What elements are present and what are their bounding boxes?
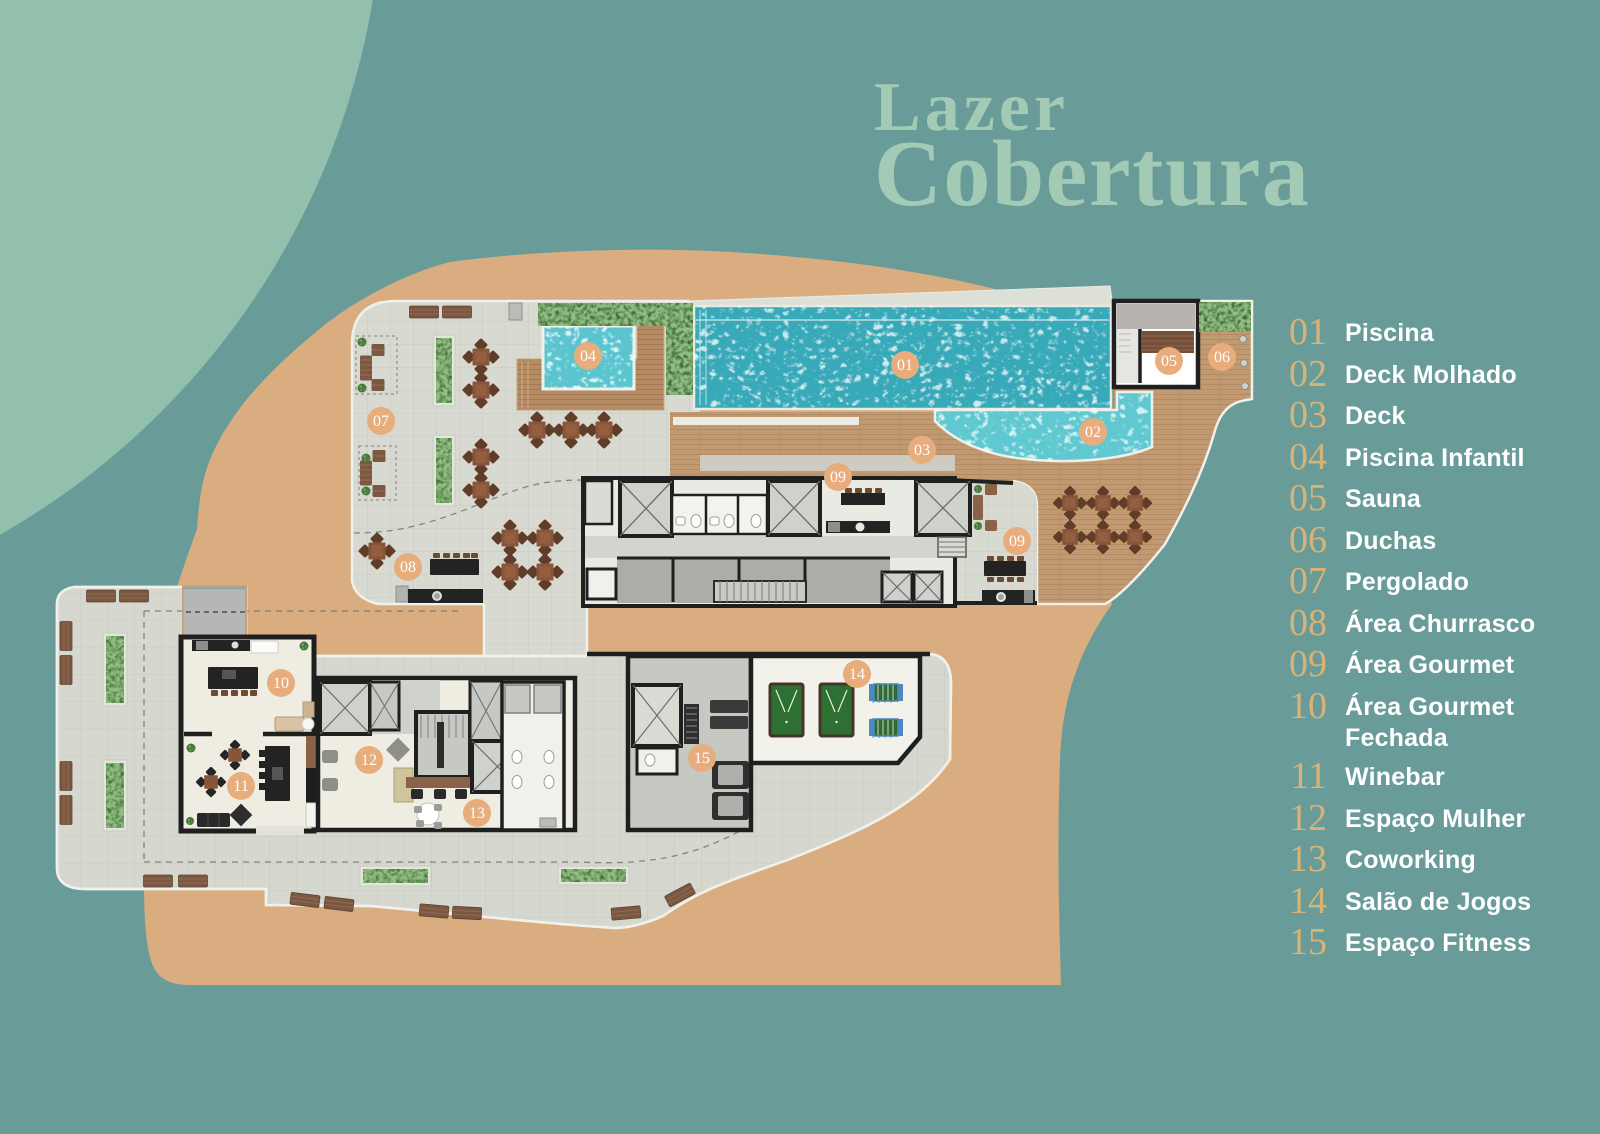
svg-text:14: 14 xyxy=(1289,880,1327,922)
svg-text:15: 15 xyxy=(1289,921,1327,963)
svg-text:Área Churrasco: Área Churrasco xyxy=(1345,609,1535,638)
svg-text:02: 02 xyxy=(1289,353,1327,395)
svg-text:01: 01 xyxy=(897,357,913,374)
svg-text:12: 12 xyxy=(1289,797,1327,839)
svg-text:15: 15 xyxy=(694,750,710,767)
svg-text:Fechada: Fechada xyxy=(1345,724,1449,752)
svg-text:11: 11 xyxy=(1290,755,1327,797)
svg-text:11: 11 xyxy=(233,778,248,795)
svg-text:14: 14 xyxy=(849,666,865,683)
svg-text:10: 10 xyxy=(273,675,289,692)
svg-text:Cobertura: Cobertura xyxy=(874,122,1310,226)
svg-text:10: 10 xyxy=(1289,685,1327,727)
svg-text:13: 13 xyxy=(469,805,485,822)
svg-text:Espaço Mulher: Espaço Mulher xyxy=(1345,805,1525,833)
svg-text:01: 01 xyxy=(1289,311,1327,353)
svg-text:03: 03 xyxy=(914,442,930,459)
svg-text:Winebar: Winebar xyxy=(1345,763,1445,791)
svg-text:Salão de Jogos: Salão de Jogos xyxy=(1345,888,1531,916)
svg-text:06: 06 xyxy=(1214,349,1230,366)
svg-text:Pergolado: Pergolado xyxy=(1345,568,1469,596)
svg-text:Duchas: Duchas xyxy=(1345,527,1437,555)
svg-text:08: 08 xyxy=(400,559,416,576)
svg-text:Sauna: Sauna xyxy=(1345,485,1422,513)
svg-text:04: 04 xyxy=(1289,436,1327,478)
svg-text:04: 04 xyxy=(580,348,596,365)
svg-text:13: 13 xyxy=(1289,838,1327,880)
svg-text:Coworking: Coworking xyxy=(1345,846,1476,874)
svg-text:09: 09 xyxy=(830,469,846,486)
svg-text:05: 05 xyxy=(1289,477,1327,519)
svg-text:09: 09 xyxy=(1009,533,1025,550)
svg-text:Deck Molhado: Deck Molhado xyxy=(1345,361,1517,389)
svg-text:02: 02 xyxy=(1085,424,1101,441)
svg-text:05: 05 xyxy=(1161,353,1177,370)
svg-text:03: 03 xyxy=(1289,394,1327,436)
svg-text:09: 09 xyxy=(1289,643,1327,685)
svg-text:Área Gourmet: Área Gourmet xyxy=(1345,650,1515,679)
svg-text:Deck: Deck xyxy=(1345,402,1406,430)
svg-text:Área Gourmet: Área Gourmet xyxy=(1345,692,1515,721)
svg-text:07: 07 xyxy=(373,413,389,430)
svg-text:Piscina: Piscina xyxy=(1345,319,1435,347)
svg-text:Piscina Infantil: Piscina Infantil xyxy=(1345,444,1525,472)
svg-text:08: 08 xyxy=(1289,602,1327,644)
svg-text:12: 12 xyxy=(361,752,377,769)
svg-text:07: 07 xyxy=(1289,560,1327,602)
svg-text:06: 06 xyxy=(1289,519,1327,561)
svg-text:Espaço Fitness: Espaço Fitness xyxy=(1345,929,1531,957)
